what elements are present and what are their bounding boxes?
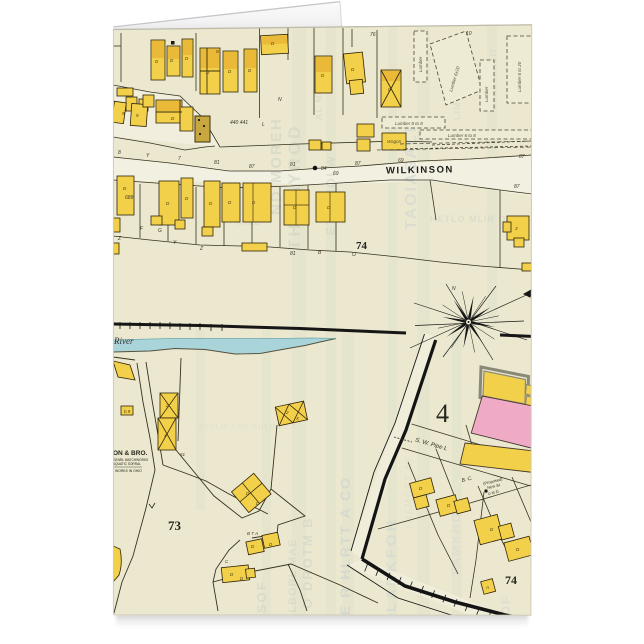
- svg-text:A: A: [485, 585, 489, 590]
- svg-text:87: 87: [514, 184, 520, 190]
- svg-text:81: 81: [180, 452, 186, 457]
- svg-text:81: 81: [214, 160, 220, 166]
- svg-text:84: 84: [321, 166, 327, 172]
- svg-text:Lumber: Lumber: [418, 56, 423, 72]
- svg-text:440 441: 440 441: [230, 120, 248, 126]
- svg-text:74: 74: [356, 240, 368, 252]
- svg-text:WORKS IN OHIO: WORKS IN OHIO: [115, 469, 142, 473]
- svg-text:73: 73: [168, 518, 182, 533]
- svg-text:Lumber: Lumber: [484, 86, 489, 102]
- svg-text:Lumber 6 to 20: Lumber 6 to 20: [517, 61, 522, 92]
- svg-text:L: L: [262, 122, 265, 128]
- svg-text:E R HLRTT A CO: E R HLRTT A CO: [337, 476, 353, 615]
- svg-text:Lumber 8 to 8: Lumber 8 to 8: [395, 121, 423, 126]
- svg-text:Lumber 6 to 8: Lumber 6 to 8: [448, 133, 476, 138]
- svg-text:Wagon: Wagon: [387, 139, 402, 144]
- svg-text:81: 81: [290, 251, 296, 257]
- svg-text:4: 4: [436, 399, 449, 428]
- svg-text:B T A: B T A: [247, 531, 258, 536]
- svg-text:...... SEVLM AOD GHLMNO TI.: ...... SEVLM AOD GHLMNO TI.: [178, 424, 303, 431]
- svg-text:THDIAYROD: THDIAYROD: [285, 124, 304, 251]
- svg-text:AQUATIC SORRAL: AQUATIC SORRAL: [113, 462, 141, 466]
- svg-text:O: O: [352, 252, 356, 258]
- svg-text:N: N: [452, 286, 456, 292]
- svg-text:87: 87: [249, 164, 255, 170]
- svg-text:87: 87: [519, 154, 525, 160]
- svg-text:HETLO MLIR OL: HETLO MLIR OL: [430, 214, 513, 224]
- svg-text:WILKINSON: WILKINSON: [386, 164, 454, 176]
- svg-text:76: 76: [370, 32, 376, 38]
- svg-text:87: 87: [355, 161, 361, 167]
- svg-text:7: 7: [178, 156, 181, 162]
- svg-text:74: 74: [505, 573, 517, 587]
- svg-text:River: River: [113, 336, 134, 346]
- svg-text:81: 81: [290, 162, 296, 168]
- svg-text:ON & BRO.: ON & BRO.: [113, 450, 148, 457]
- svg-text:689: 689: [125, 195, 134, 201]
- svg-text:2: 2: [165, 403, 169, 408]
- svg-text:8: 8: [118, 150, 121, 156]
- svg-text:2: 2: [285, 410, 289, 415]
- svg-text:b.9: b.9: [124, 409, 131, 414]
- svg-text:N: N: [278, 97, 282, 103]
- svg-text:10: 10: [466, 31, 472, 37]
- svg-text:G: G: [158, 228, 162, 234]
- svg-text:69: 69: [333, 171, 339, 177]
- svg-text:69: 69: [398, 158, 404, 164]
